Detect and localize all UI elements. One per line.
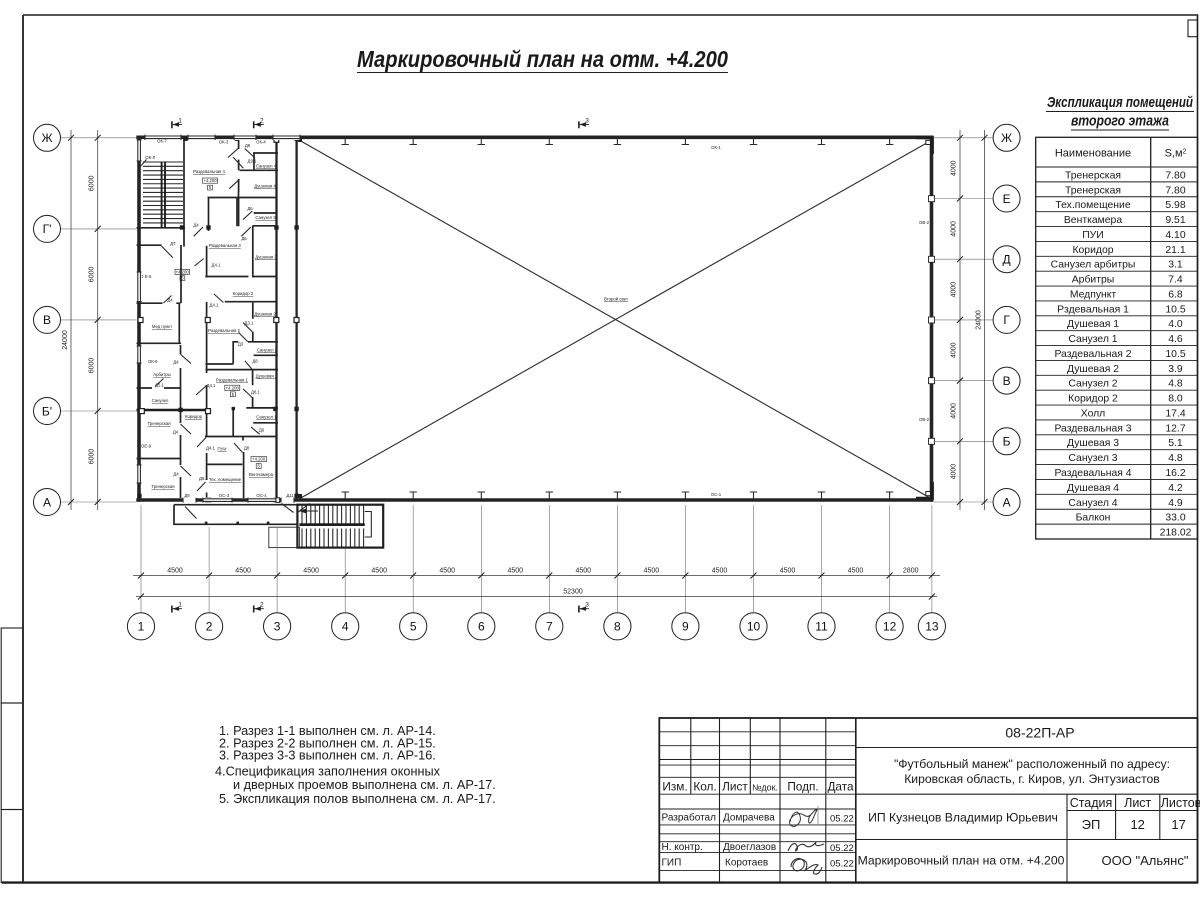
svg-text:4500: 4500: [508, 568, 524, 575]
svg-text:5.98: 5.98: [1165, 200, 1185, 211]
svg-text:А: А: [43, 495, 51, 509]
svg-text:В: В: [43, 313, 51, 327]
svg-text:Раздевальная 2: Раздевальная 2: [208, 328, 240, 333]
svg-text:3: 3: [585, 118, 589, 125]
svg-text:7.4: 7.4: [1168, 275, 1183, 286]
svg-text:Б': Б': [42, 404, 52, 418]
svg-text:16.2: 16.2: [1165, 468, 1185, 479]
svg-text:4500: 4500: [644, 568, 660, 575]
svg-text:6000: 6000: [89, 267, 96, 283]
svg-text:ОВ-2: ОВ-2: [919, 417, 930, 422]
svg-text:Душевая 3: Душевая 3: [255, 255, 277, 260]
svg-text:Раздевальная 3: Раздевальная 3: [209, 243, 241, 248]
svg-text:Душевая 2: Душевая 2: [254, 312, 276, 317]
svg-text:2: 2: [260, 602, 264, 609]
svg-text:3.9: 3.9: [1168, 364, 1183, 375]
svg-text:05.22: 05.22: [830, 843, 854, 854]
svg-text:4000: 4000: [951, 464, 958, 480]
svg-text:ОВ-2: ОВ-2: [919, 220, 930, 225]
svg-text:Тренерская: Тренерская: [151, 484, 175, 489]
svg-text:Ж: Ж: [41, 131, 52, 145]
svg-text:Санузел арбитры: Санузел арбитры: [1051, 259, 1136, 271]
svg-text:12: 12: [883, 620, 897, 634]
svg-text:10: 10: [747, 620, 761, 634]
svg-text:1: 1: [138, 620, 145, 634]
svg-text:4000: 4000: [951, 342, 958, 358]
svg-text:Санузел: Санузел: [152, 398, 169, 403]
svg-text:Д4: Д4: [167, 298, 173, 303]
svg-text:Холл: Холл: [1081, 408, 1106, 419]
svg-text:12: 12: [1130, 817, 1144, 832]
svg-text:Д8: Д8: [244, 446, 250, 451]
svg-text:4000: 4000: [951, 160, 958, 176]
svg-text:Лист: Лист: [1124, 796, 1151, 810]
svg-text:Кировская область, г. Киров, у: Кировская область, г. Киров, ул. Энтузиа…: [904, 772, 1160, 786]
svg-text:Наименование: Наименование: [1055, 148, 1131, 160]
svg-text:Д3.1: Д3.1: [245, 321, 254, 326]
svg-text:Домрачева: Домрачева: [723, 813, 775, 824]
svg-text:7.80: 7.80: [1165, 170, 1185, 181]
svg-text:ОС-3: ОС-3: [219, 493, 230, 498]
svg-text:Д11: Д11: [286, 493, 294, 498]
svg-text:№док.: №док.: [752, 783, 778, 793]
svg-text:Тренерская: Тренерская: [147, 421, 171, 426]
svg-text:Д4: Д4: [173, 472, 179, 477]
svg-text:Тех. помещение: Тех. помещение: [209, 477, 242, 482]
svg-text:Раздевальная 2: Раздевальная 2: [1054, 349, 1131, 360]
svg-text:Изм.: Изм.: [662, 780, 687, 794]
svg-text:4.2: 4.2: [1168, 483, 1183, 494]
svg-text:Медпункт: Медпункт: [1070, 289, 1117, 300]
svg-text:Второй свет: Второй свет: [604, 297, 628, 302]
svg-text:Д4: Д4: [193, 223, 199, 228]
svg-text:4500: 4500: [235, 568, 251, 575]
svg-text:"Футбольный манеж" расположенн: "Футбольный манеж" расположенный по адре…: [894, 757, 1170, 771]
svg-text:Двоеглазов: Двоеглазов: [723, 842, 776, 853]
svg-text:Санузел 3: Санузел 3: [255, 215, 276, 220]
svg-text:10.5: 10.5: [1165, 349, 1185, 360]
svg-text:Санузел 1: Санузел 1: [1068, 334, 1117, 345]
svg-text:33.0: 33.0: [1165, 513, 1185, 524]
svg-text:Балкон: Балкон: [1076, 513, 1111, 524]
svg-text:Д5.1: Д5.1: [155, 383, 164, 388]
svg-text:9: 9: [682, 620, 689, 634]
svg-text:08-22П-АР: 08-22П-АР: [1005, 725, 1074, 741]
svg-text:3. Разрез 3-3 выполнен см. л.: 3. Разрез 3-3 выполнен см. л. АР-16.: [219, 749, 436, 763]
svg-text:4.0: 4.0: [1168, 319, 1183, 330]
svg-text:4500: 4500: [167, 568, 183, 575]
svg-text:05.22: 05.22: [830, 814, 854, 825]
svg-text:Коротаев: Коротаев: [725, 858, 768, 869]
svg-text:Г': Г': [43, 222, 52, 236]
svg-text:ИП Кузнецов Владимир Юрьевич: ИП Кузнецов Владимир Юрьевич: [868, 811, 1058, 825]
svg-text:ОК-1: ОК-1: [711, 145, 721, 150]
svg-text:Д9: Д9: [245, 143, 251, 148]
svg-text:4.8: 4.8: [1168, 379, 1183, 390]
svg-text:4500: 4500: [848, 568, 864, 575]
svg-text:Венткамера: Венткамера: [249, 472, 274, 477]
svg-text:05.22: 05.22: [830, 859, 854, 870]
svg-text:6000: 6000: [89, 358, 96, 374]
svg-text:Д8.1: Д8.1: [251, 390, 260, 395]
svg-text:4.8: 4.8: [1168, 453, 1183, 464]
svg-text:5.1: 5.1: [1168, 438, 1183, 449]
svg-text:Д4.1: Д4.1: [210, 303, 219, 308]
svg-text:Арбитры: Арбитры: [153, 372, 171, 377]
svg-text:17: 17: [1171, 817, 1185, 832]
svg-text:О Е-6: О Е-6: [140, 274, 152, 279]
svg-text:Душевая 1: Душевая 1: [256, 374, 278, 379]
svg-text:4.6: 4.6: [1168, 334, 1183, 345]
svg-text:Д6: Д6: [259, 428, 265, 433]
svg-text:Лист: Лист: [722, 780, 748, 794]
svg-text:Экспликация помещений: Экспликация помещений: [1047, 94, 1193, 111]
svg-text:ОС-1: ОС-1: [711, 492, 722, 497]
svg-text:Арбитры: Арбитры: [1072, 274, 1114, 286]
svg-text:Коридор: Коридор: [185, 414, 203, 419]
svg-text:Подп.: Подп.: [787, 780, 818, 794]
svg-text:Г: Г: [1003, 313, 1010, 327]
svg-text:Душевая 2: Душевая 2: [1067, 364, 1119, 375]
svg-text:Санузел 3: Санузел 3: [1068, 453, 1117, 464]
svg-text:Тренерская: Тренерская: [1065, 185, 1121, 196]
svg-text:ОК-Л: ОК-Л: [145, 155, 155, 160]
svg-text:11: 11: [815, 620, 828, 634]
svg-text:Санузел 4: Санузел 4: [256, 163, 277, 168]
svg-text:Раздевальная 4: Раздевальная 4: [1054, 468, 1131, 479]
svg-text:+4.200: +4.200: [252, 457, 266, 462]
svg-text:24000: 24000: [62, 330, 69, 350]
svg-text:4000: 4000: [951, 403, 958, 419]
svg-text:А: А: [1003, 495, 1011, 509]
svg-text:Маркировочный план на отм. +4.: Маркировочный план на отм. +4.200: [858, 854, 1065, 868]
svg-text:Раздевальная 3: Раздевальная 3: [1054, 423, 1131, 434]
svg-text:4000: 4000: [951, 282, 958, 298]
svg-text:Тех.помещение: Тех.помещение: [1055, 200, 1130, 211]
svg-text:Душевая 1: Душевая 1: [1067, 319, 1119, 330]
svg-text:4.Спецификация заполнения окон: 4.Спецификация заполнения оконных: [215, 765, 441, 779]
svg-text:ООО "Альянс": ООО "Альянс": [1102, 853, 1189, 868]
svg-text:Б: Б: [1003, 435, 1011, 449]
svg-text:21.1: 21.1: [1165, 245, 1185, 256]
svg-text:ОЕ-9: ОЕ-9: [141, 444, 152, 449]
svg-text:Душевая 4: Душевая 4: [1067, 483, 1119, 494]
svg-text:4.9: 4.9: [1168, 498, 1183, 509]
svg-text:13: 13: [925, 620, 939, 634]
svg-text:Д4.1: Д4.1: [212, 263, 221, 268]
svg-text:6000: 6000: [89, 175, 96, 191]
svg-text:ДТ: ДТ: [170, 241, 176, 246]
svg-text:8: 8: [614, 620, 621, 634]
svg-text:Д4: Д4: [173, 360, 179, 365]
svg-text:4: 4: [342, 620, 349, 634]
svg-text:ОС-4: ОС-4: [256, 493, 267, 498]
svg-text:Д6: Д6: [241, 236, 247, 241]
svg-text:7.80: 7.80: [1165, 185, 1185, 196]
svg-text:Душевая 3: Душевая 3: [1067, 438, 1119, 449]
svg-text:ГИП: ГИП: [662, 858, 682, 869]
svg-text:12.7: 12.7: [1165, 423, 1185, 434]
svg-text:Е: Е: [1003, 192, 1011, 206]
svg-text:Разработал: Разработал: [662, 812, 717, 824]
svg-text:Санузел 1: Санузел 1: [256, 415, 277, 420]
svg-text:3: 3: [274, 620, 281, 634]
svg-text:Венткамера: Венткамера: [1064, 215, 1122, 226]
svg-text:Мед пункт: Мед пункт: [152, 324, 172, 329]
svg-text:5: 5: [410, 620, 417, 634]
svg-text:Санузел 2: Санузел 2: [1068, 379, 1117, 390]
svg-text:Д8.1: Д8.1: [199, 476, 208, 481]
svg-text:6000: 6000: [89, 449, 96, 465]
svg-text:Д4.1: Д4.1: [206, 446, 215, 451]
svg-text:ПУИ: ПУИ: [218, 447, 227, 452]
svg-text:Листов: Листов: [1161, 796, 1200, 810]
svg-text:6: 6: [478, 620, 485, 634]
svg-text:218.02: 218.02: [1160, 528, 1192, 539]
svg-text:9.51: 9.51: [1165, 215, 1185, 226]
svg-text:1: 1: [178, 602, 182, 609]
svg-text:Душевая 4: Душевая 4: [254, 183, 276, 188]
svg-text:24000: 24000: [976, 310, 983, 330]
svg-text:Д6: Д6: [247, 206, 253, 211]
svg-text:В: В: [1003, 374, 1011, 388]
svg-text:Д4.1: Д4.1: [207, 383, 216, 388]
svg-text:52300: 52300: [563, 589, 583, 596]
svg-text:1: 1: [178, 118, 182, 125]
svg-text:5. Экспликация полов выполнена: 5. Экспликация полов выполнена см. л. АР…: [219, 792, 496, 806]
svg-text:Д: Д: [1003, 253, 1011, 267]
svg-text:4500: 4500: [712, 568, 728, 575]
svg-text:3: 3: [585, 602, 589, 609]
svg-text:Д4: Д4: [173, 430, 179, 435]
svg-text:ЭП: ЭП: [1082, 817, 1101, 832]
svg-text:7: 7: [546, 620, 553, 634]
svg-text:Стадия: Стадия: [1070, 796, 1113, 810]
svg-text:4.10: 4.10: [1165, 230, 1185, 241]
svg-text:Санузел 2: Санузел 2: [257, 348, 278, 353]
svg-text:2: 2: [260, 118, 264, 125]
svg-text:4500: 4500: [780, 568, 796, 575]
svg-text:ОК-6: ОК-6: [148, 359, 158, 364]
svg-text:Коридор 2: Коридор 2: [233, 291, 254, 296]
svg-text:Раздевальная 1: Раздевальная 1: [216, 378, 248, 383]
svg-text:Д9.1: Д9.1: [248, 159, 257, 164]
svg-text:2800: 2800: [903, 568, 919, 575]
svg-text:Коридор: Коридор: [1072, 245, 1113, 256]
svg-text:+4.200: +4.200: [203, 178, 217, 183]
svg-text:Санузел 4: Санузел 4: [1068, 498, 1117, 509]
svg-text:6.8: 6.8: [1168, 289, 1183, 300]
svg-text:4500: 4500: [576, 568, 592, 575]
svg-text:10.5: 10.5: [1165, 304, 1185, 315]
svg-text:4500: 4500: [439, 568, 455, 575]
svg-text:Дата: Дата: [827, 780, 854, 794]
svg-text:Кол.: Кол.: [693, 780, 716, 794]
svg-text:+4.200: +4.200: [226, 385, 240, 390]
svg-text:Коридор 2: Коридор 2: [1068, 394, 1118, 405]
svg-text:ПУИ: ПУИ: [1082, 230, 1104, 241]
svg-text:ОК-7: ОК-7: [157, 139, 167, 144]
svg-text:ОК-3: ОК-3: [219, 140, 229, 145]
svg-text:+4.200: +4.200: [176, 269, 190, 274]
svg-text:4000: 4000: [951, 221, 958, 237]
svg-text:4500: 4500: [371, 568, 387, 575]
svg-text:17.4: 17.4: [1165, 408, 1185, 419]
svg-text:Д8: Д8: [252, 359, 258, 364]
svg-text:Тренерская: Тренерская: [1065, 170, 1121, 181]
svg-text:8.0: 8.0: [1168, 394, 1183, 405]
svg-text:Маркировочный план на отм. +4.: Маркировочный план на отм. +4.200: [357, 46, 728, 72]
svg-text:4500: 4500: [303, 568, 319, 575]
svg-text:3.1: 3.1: [1168, 260, 1183, 271]
svg-text:Д3: Д3: [238, 342, 244, 347]
svg-text:Рздевальная 1: Рздевальная 1: [1057, 304, 1129, 315]
svg-text:Раздевальная 4: Раздевальная 4: [193, 169, 225, 174]
svg-text:второго этажа: второго этажа: [1071, 113, 1169, 130]
svg-text:Ж: Ж: [1001, 131, 1012, 145]
svg-text:и дверных проемов выполнена см: и дверных проемов выполнена см. л. АР-17…: [233, 778, 496, 792]
svg-text:Д9: Д9: [184, 493, 190, 498]
svg-text:ОК-4: ОК-4: [256, 140, 266, 145]
svg-text:Н. контр.: Н. контр.: [662, 842, 703, 853]
svg-text:2: 2: [206, 620, 213, 634]
